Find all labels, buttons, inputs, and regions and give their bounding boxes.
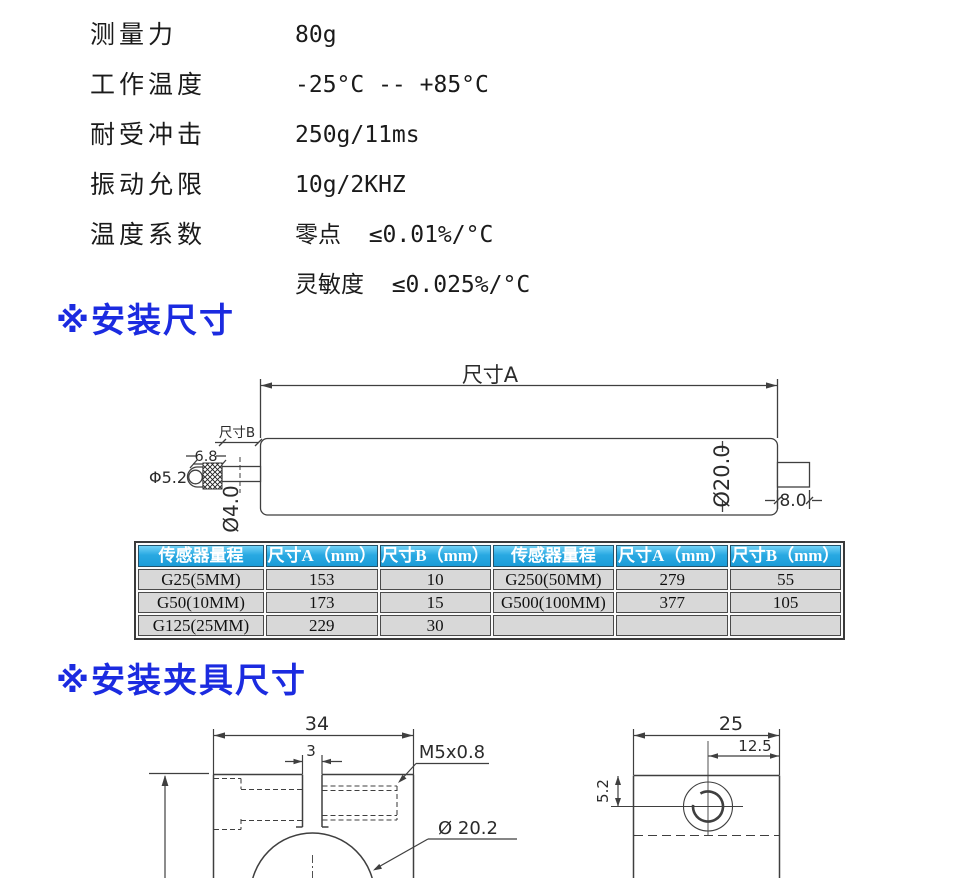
- table-cell: 173: [266, 592, 378, 613]
- table-cell: 30: [380, 615, 491, 636]
- half-width-dim: 12.5: [738, 737, 771, 755]
- spec-label-measuring-force: 测量力: [90, 20, 177, 50]
- table-cell: [730, 615, 841, 636]
- spec-label-temp-coeff: 温度系数: [90, 220, 206, 250]
- table-cell: 229: [266, 615, 378, 636]
- table-header-cell: 传感器量程: [138, 545, 264, 567]
- tip-diameter-dim: Φ5.2: [149, 468, 187, 487]
- hole-offset-dim: 5.2: [594, 779, 612, 803]
- table-row: G50(10MM) 173 15 G500(100MM) 377 105: [138, 592, 841, 613]
- dim-a-label: 尺寸A: [462, 363, 519, 387]
- hidden-hole-lines: [214, 779, 397, 830]
- table-cell: G250(50MM): [493, 569, 615, 590]
- table-cell: 105: [730, 592, 841, 613]
- slot-width-dim: 3: [306, 742, 316, 760]
- table-header-cell: 尺寸A（mm）: [266, 545, 378, 567]
- table-cell: 153: [266, 569, 378, 590]
- shaft-diameter-dim: Ø4.0: [219, 485, 243, 533]
- table-cell: [616, 615, 728, 636]
- sensor-size-table: 传感器量程 尺寸A（mm） 尺寸B（mm） 传感器量程 尺寸A（mm） 尺寸B（…: [134, 541, 845, 640]
- bore-diameter-label: Ø 20.2: [438, 818, 498, 839]
- table-header-cell: 尺寸B（mm）: [730, 545, 841, 567]
- knurl-length-dim: 6.8: [194, 449, 217, 465]
- table-cell: 279: [616, 569, 728, 590]
- table-header-row: 传感器量程 尺寸A（mm） 尺寸B（mm） 传感器量程 尺寸A（mm） 尺寸B（…: [138, 545, 841, 567]
- fixture-dimension-drawing: 34 3 M5x0.8 Ø 20.2: [0, 705, 960, 878]
- table-cell: G50(10MM): [138, 592, 264, 613]
- spec-sheet-page: 测量力 80g 工作温度 -25°C -- +85°C 耐受冲击 250g/11…: [0, 0, 960, 878]
- spec-value-measuring-force: 80g: [295, 20, 337, 50]
- table-header-cell: 尺寸A（mm）: [616, 545, 728, 567]
- table-cell: 55: [730, 569, 841, 590]
- dim-b-label: 尺寸B: [219, 425, 255, 441]
- table-row: G25(5MM) 153 10 G250(50MM) 279 55: [138, 569, 841, 590]
- spec-value-shock: 250g/11ms: [295, 120, 420, 150]
- table-cell: 15: [380, 592, 491, 613]
- fixture-width-dim: 34: [305, 713, 329, 735]
- table-cell: G125(25MM): [138, 615, 264, 636]
- stub-length-dim: 8.0: [779, 491, 806, 511]
- table-cell: G25(5MM): [138, 569, 264, 590]
- spec-label-operating-temp: 工作温度: [90, 70, 206, 100]
- sensor-dimension-drawing: 尺寸A 尺寸B 6.8 Φ5.2 Ø4.0 Ø20.0 8.0: [0, 352, 960, 541]
- table-row: G125(25MM) 229 30: [138, 615, 841, 636]
- table-header-cell: 尺寸B（mm）: [380, 545, 491, 567]
- body-diameter-dim: Ø20.0: [710, 444, 734, 507]
- spec-value-vibration: 10g/2KHZ: [295, 170, 406, 200]
- table-header-cell: 传感器量程: [493, 545, 615, 567]
- fixture-dimensions-title: ※安装夹具尺寸: [56, 661, 307, 701]
- thread-spec-label: M5x0.8: [419, 742, 485, 763]
- spec-value-temp-coeff-zero: 零点 ≤0.01%/°C: [295, 220, 493, 250]
- table-cell: [493, 615, 615, 636]
- spec-value-operating-temp: -25°C -- +85°C: [295, 70, 489, 100]
- block-width-dim: 25: [719, 713, 743, 735]
- table-cell: 377: [616, 592, 728, 613]
- table-cell: G500(100MM): [493, 592, 615, 613]
- mounting-dimensions-title: ※安装尺寸: [56, 301, 235, 341]
- spec-label-shock: 耐受冲击: [90, 120, 206, 150]
- spec-label-vibration: 振动允限: [90, 170, 206, 200]
- table-cell: 10: [380, 569, 491, 590]
- spec-value-temp-coeff-sens: 灵敏度 ≤0.025%/°C: [295, 270, 530, 300]
